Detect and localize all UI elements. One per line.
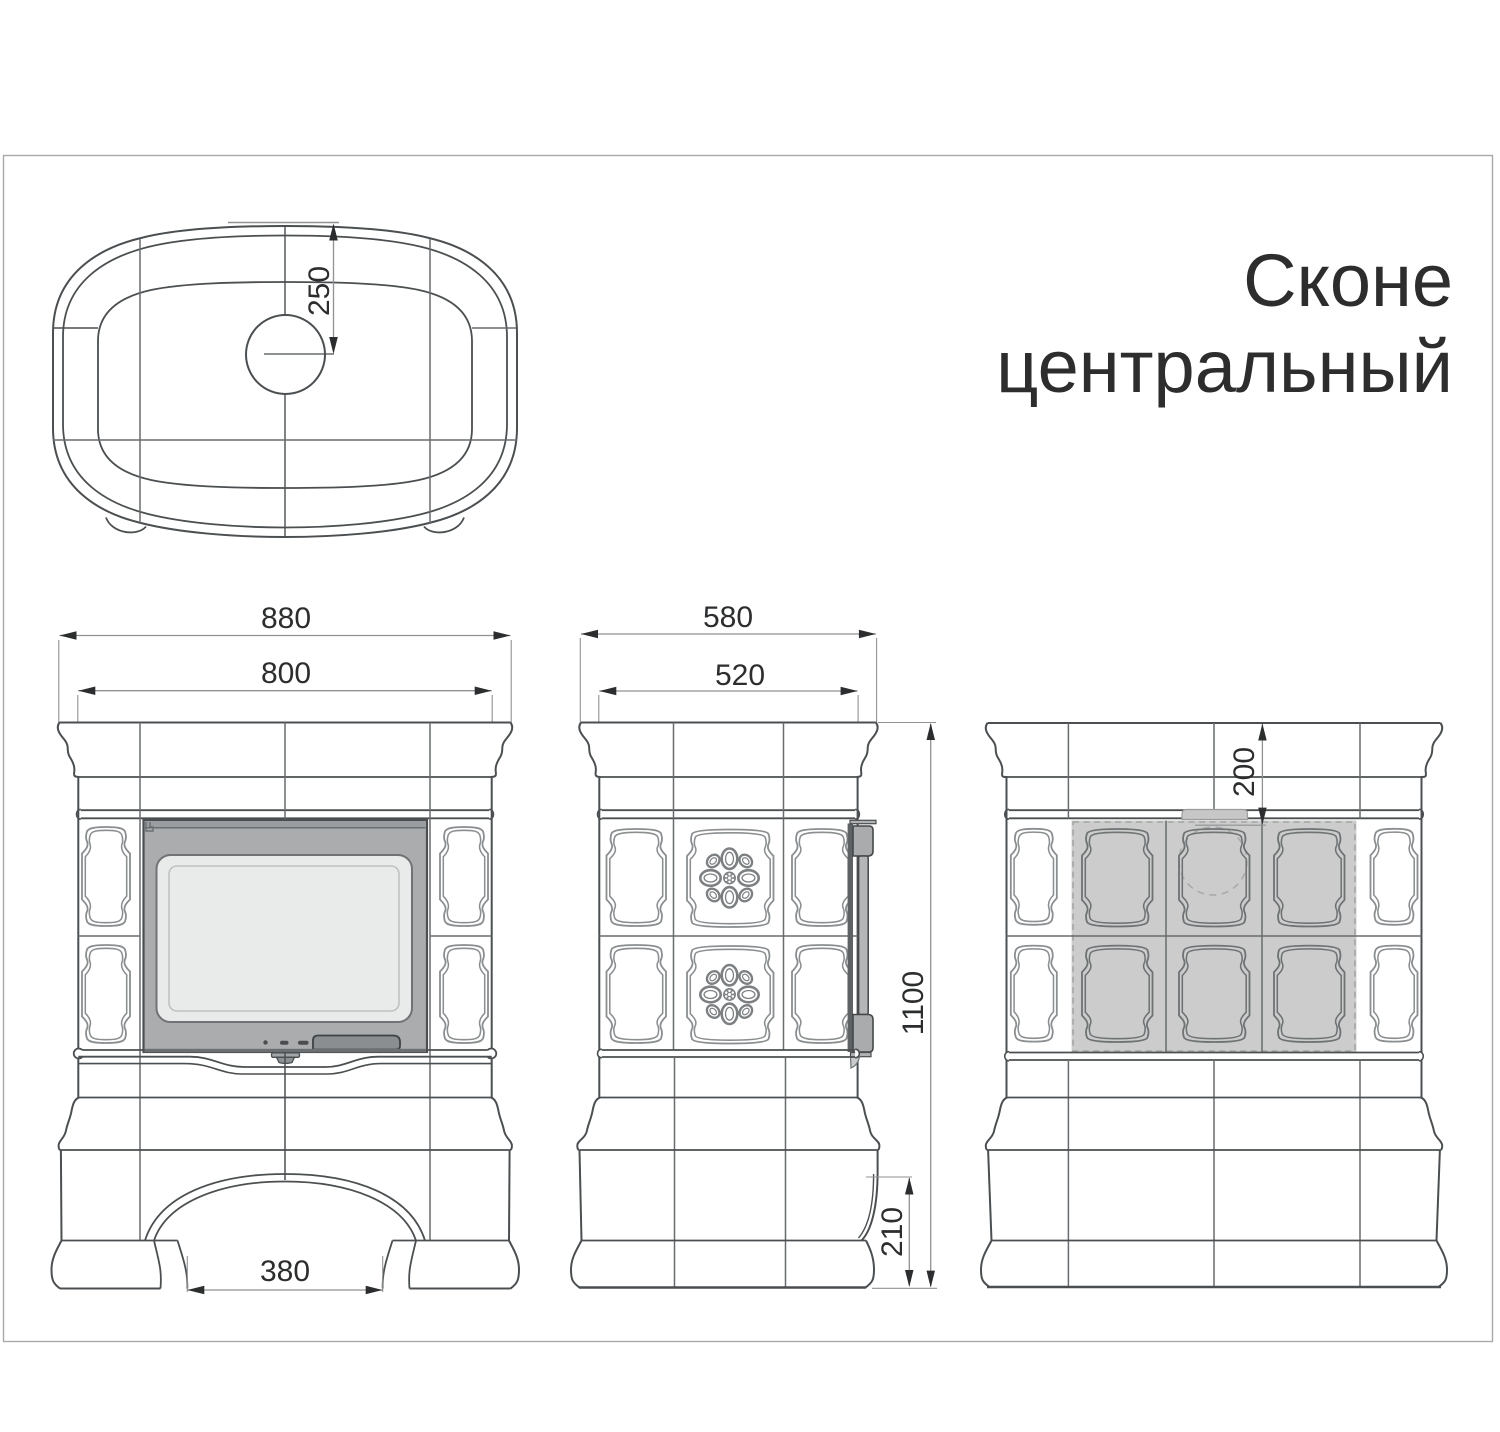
svg-text:210: 210 bbox=[876, 1207, 909, 1257]
svg-text:1100: 1100 bbox=[897, 971, 930, 1036]
svg-text:250: 250 bbox=[303, 266, 336, 316]
svg-text:520: 520 bbox=[715, 659, 765, 692]
svg-text:800: 800 bbox=[261, 657, 311, 690]
svg-text:880: 880 bbox=[261, 602, 311, 635]
svg-text:200: 200 bbox=[1228, 747, 1261, 797]
svg-text:580: 580 bbox=[703, 601, 753, 634]
svg-text:Сконе: Сконе bbox=[1243, 239, 1453, 322]
svg-text:380: 380 bbox=[260, 1255, 310, 1288]
svg-text:центральный: центральный bbox=[996, 325, 1453, 408]
